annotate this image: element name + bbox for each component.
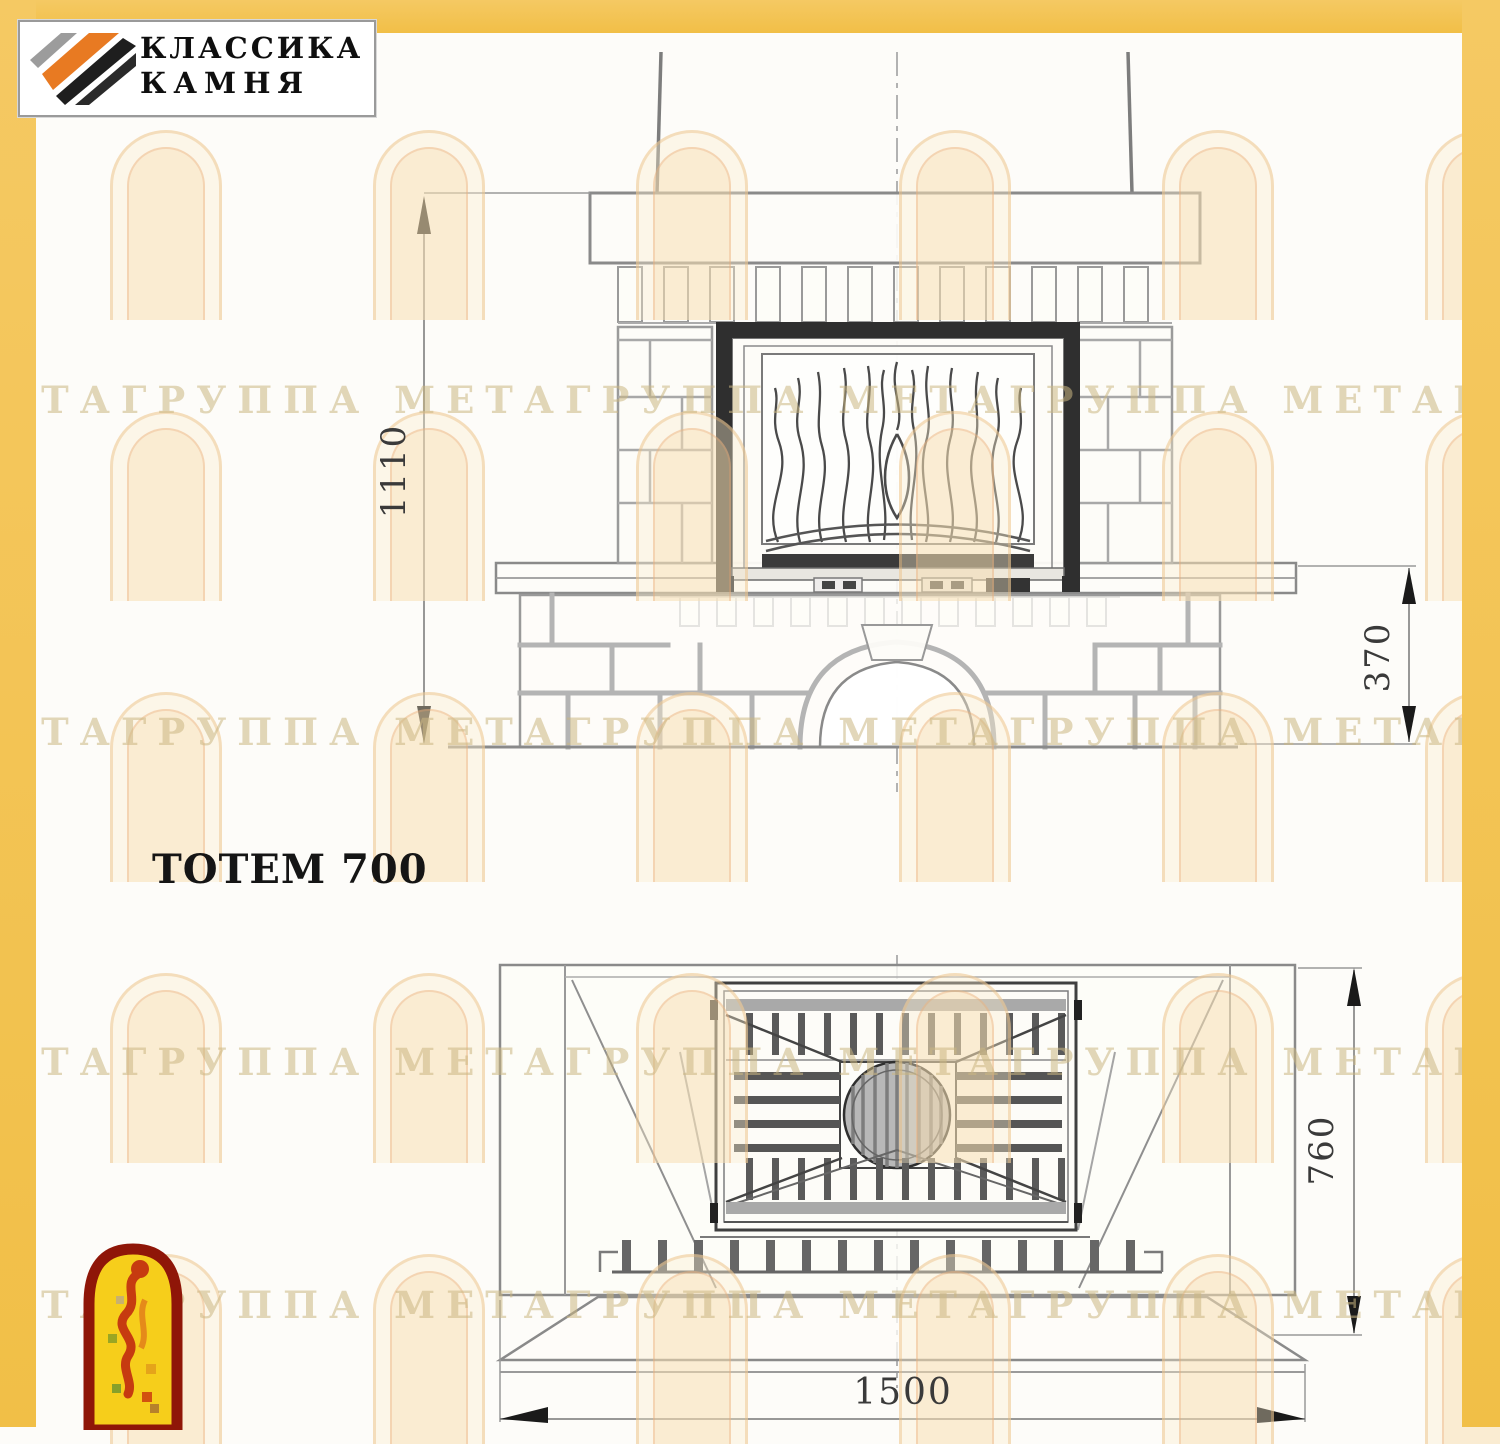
left-pier [618, 327, 712, 563]
firebox-insert [716, 322, 1080, 592]
brand-logo-stripes-icon [30, 33, 136, 105]
chimney-lines [657, 52, 1132, 193]
stone-base [448, 595, 1238, 747]
front-elevation-view [417, 52, 1416, 792]
mantel-shelf [590, 193, 1200, 263]
page-frame-left [0, 0, 36, 1427]
plan-hearth-slab [500, 1297, 1305, 1372]
ash-lip [762, 554, 1034, 568]
dimension-label-1110: 1110 [376, 423, 412, 519]
brand-name-line2: КАМНЯ [140, 66, 363, 101]
dimension-label-1500: 1500 [818, 1372, 988, 1413]
firebox-vents [814, 578, 1030, 592]
plan-view [500, 955, 1362, 1423]
dimension-label-760: 760 [1304, 1102, 1340, 1198]
right-pier [1078, 327, 1172, 563]
model-title: ТОТЕМ 700 [152, 846, 428, 893]
dimension-label-370: 370 [1360, 609, 1396, 705]
brand-logo: КЛАССИКА КАМНЯ [18, 20, 376, 117]
flue-circle [844, 1062, 950, 1168]
brand-name: КЛАССИКА КАМНЯ [140, 31, 363, 101]
keystone [862, 625, 932, 660]
plan-firebox [710, 983, 1082, 1230]
fireplace-technical-drawing [0, 0, 1500, 1427]
page-frame-right [1462, 0, 1500, 1427]
dentil-row-top [618, 267, 1172, 323]
brand-name-line1: КЛАССИКА [140, 31, 363, 66]
meta-group-emblem [82, 1238, 184, 1430]
